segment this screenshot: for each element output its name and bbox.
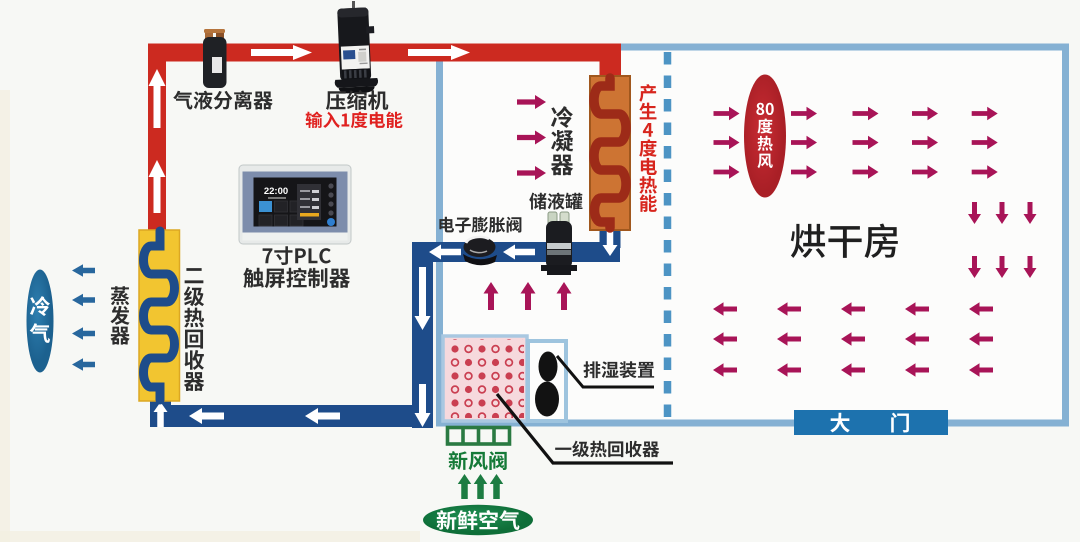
svg-text:22:00: 22:00 — [264, 186, 288, 197]
